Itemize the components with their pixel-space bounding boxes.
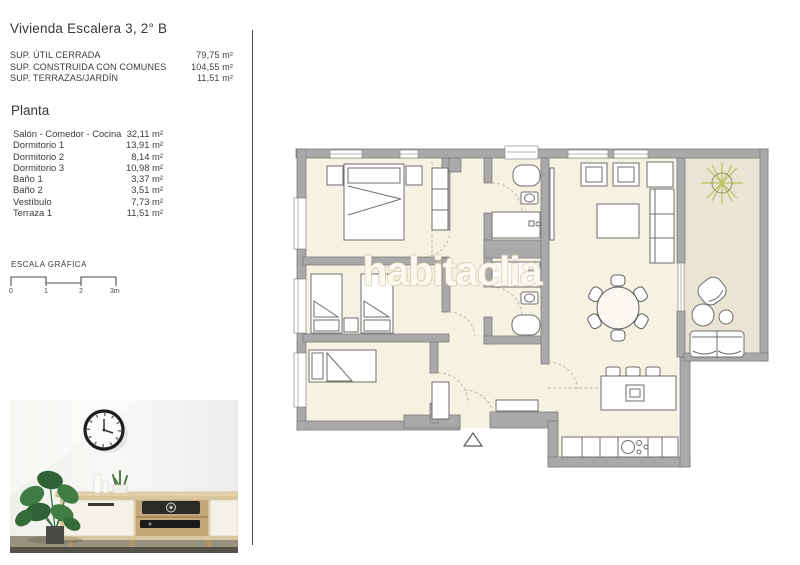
summary-label: SUP. ÚTIL CERRADA: [10, 50, 101, 62]
plant-icon: [701, 162, 743, 204]
pillow: [364, 320, 390, 331]
dorm2-furniture: [309, 350, 376, 382]
room-row: Salón - Comedor - Cocina32,11 m²: [13, 128, 163, 139]
room-name: Dormitorio 1: [13, 139, 64, 150]
wardrobe: [432, 168, 448, 230]
sink: [622, 441, 635, 454]
scale-bar: [10, 274, 120, 288]
corner-unit: [647, 162, 673, 187]
room-area: 13,91 m²: [126, 139, 163, 150]
summary-value: 79,75 m²: [196, 50, 233, 62]
scale-heading: ESCALA GRÁFICA: [11, 260, 87, 269]
summary-value: 11,51 m²: [197, 73, 233, 85]
panel-divider: [252, 30, 253, 545]
scale-tick: 1: [44, 288, 48, 295]
speaker: [142, 501, 200, 514]
bathtub: [513, 165, 540, 186]
sofa: [650, 189, 674, 263]
summary-row: SUP. TERRAZAS/JARDÍN 11,51 m²: [10, 73, 233, 85]
room-row: Dormitorio 113,91 m²: [13, 139, 163, 150]
summary-row: SUP. ÚTIL CERRADA 79,75 m²: [10, 50, 233, 62]
room-area: 10,98 m²: [126, 162, 163, 173]
room-area: 7,73 m²: [131, 196, 163, 207]
stool: [646, 367, 660, 376]
hall-closet: [432, 382, 449, 419]
bathtub: [512, 315, 540, 335]
surface-summary: SUP. ÚTIL CERRADA 79,75 m² SUP. CONSTRUI…: [10, 50, 233, 85]
dining-table: [597, 287, 639, 329]
entrance-arrow-icon: [464, 433, 482, 446]
room-name: Vestíbulo: [13, 196, 52, 207]
room-table: Salón - Comedor - Cocina32,11 m² Dormito…: [13, 128, 163, 218]
pillow: [312, 353, 323, 379]
entry-door-leaf: [496, 400, 538, 411]
plant-pot: [46, 526, 64, 544]
tv-sideboard: [56, 492, 238, 547]
stool: [626, 367, 640, 376]
pillow: [314, 320, 339, 331]
dvd-player: [140, 520, 200, 528]
terrace-side-table: [719, 310, 733, 324]
room-area: 8,14 m²: [131, 151, 163, 162]
scale-tick: 3m: [110, 288, 120, 295]
room-area: 11,51 m²: [127, 207, 163, 218]
room-name: Terraza 1: [13, 207, 52, 218]
pillow: [348, 168, 400, 183]
floorplan-sheet: Vivienda Escalera 3, 2° B SUP. ÚTIL CERR…: [0, 0, 800, 565]
room-name: Dormitorio 3: [13, 162, 64, 173]
nightstand: [406, 166, 422, 185]
page-title: Vivienda Escalera 3, 2° B: [10, 21, 167, 36]
radiator: [550, 168, 554, 240]
summary-value: 104,55 m²: [191, 62, 233, 74]
terrace-table: [692, 304, 714, 326]
room-row: Baño 13,37 m²: [13, 173, 163, 184]
interior-photo: [10, 400, 238, 553]
kitchen-counter: [562, 437, 678, 457]
room-row: Dormitorio 28,14 m²: [13, 151, 163, 162]
scale-tick: 0: [9, 288, 13, 295]
floorplan-drawing: [288, 138, 780, 480]
nightstand: [327, 166, 343, 185]
room-row: Baño 23,51 m²: [13, 184, 163, 195]
room-area: 3,37 m²: [131, 173, 163, 184]
room-row: Vestíbulo7,73 m²: [13, 196, 163, 207]
room-row: Terraza 111,51 m²: [13, 207, 163, 218]
room-area: 3,51 m²: [131, 184, 163, 195]
summary-label: SUP. CONSTRUIDA CON COMUNES: [10, 62, 166, 74]
room-row: Dormitorio 310,98 m²: [13, 162, 163, 173]
summary-label: SUP. TERRAZAS/JARDÍN: [10, 73, 118, 85]
coffee-table: [597, 204, 639, 238]
scale-tick: 2: [79, 288, 83, 295]
stool: [606, 367, 620, 376]
planta-heading: Planta: [11, 103, 49, 118]
summary-row: SUP. CONSTRUIDA CON COMUNES 104,55 m²: [10, 62, 233, 74]
room-name: Baño 1: [13, 173, 43, 184]
room-area: 32,11 m²: [127, 128, 163, 139]
nightstand: [344, 318, 358, 332]
room-name: Salón - Comedor - Cocina: [13, 128, 121, 139]
room-name: Baño 2: [13, 184, 43, 195]
room-name: Dormitorio 2: [13, 151, 64, 162]
